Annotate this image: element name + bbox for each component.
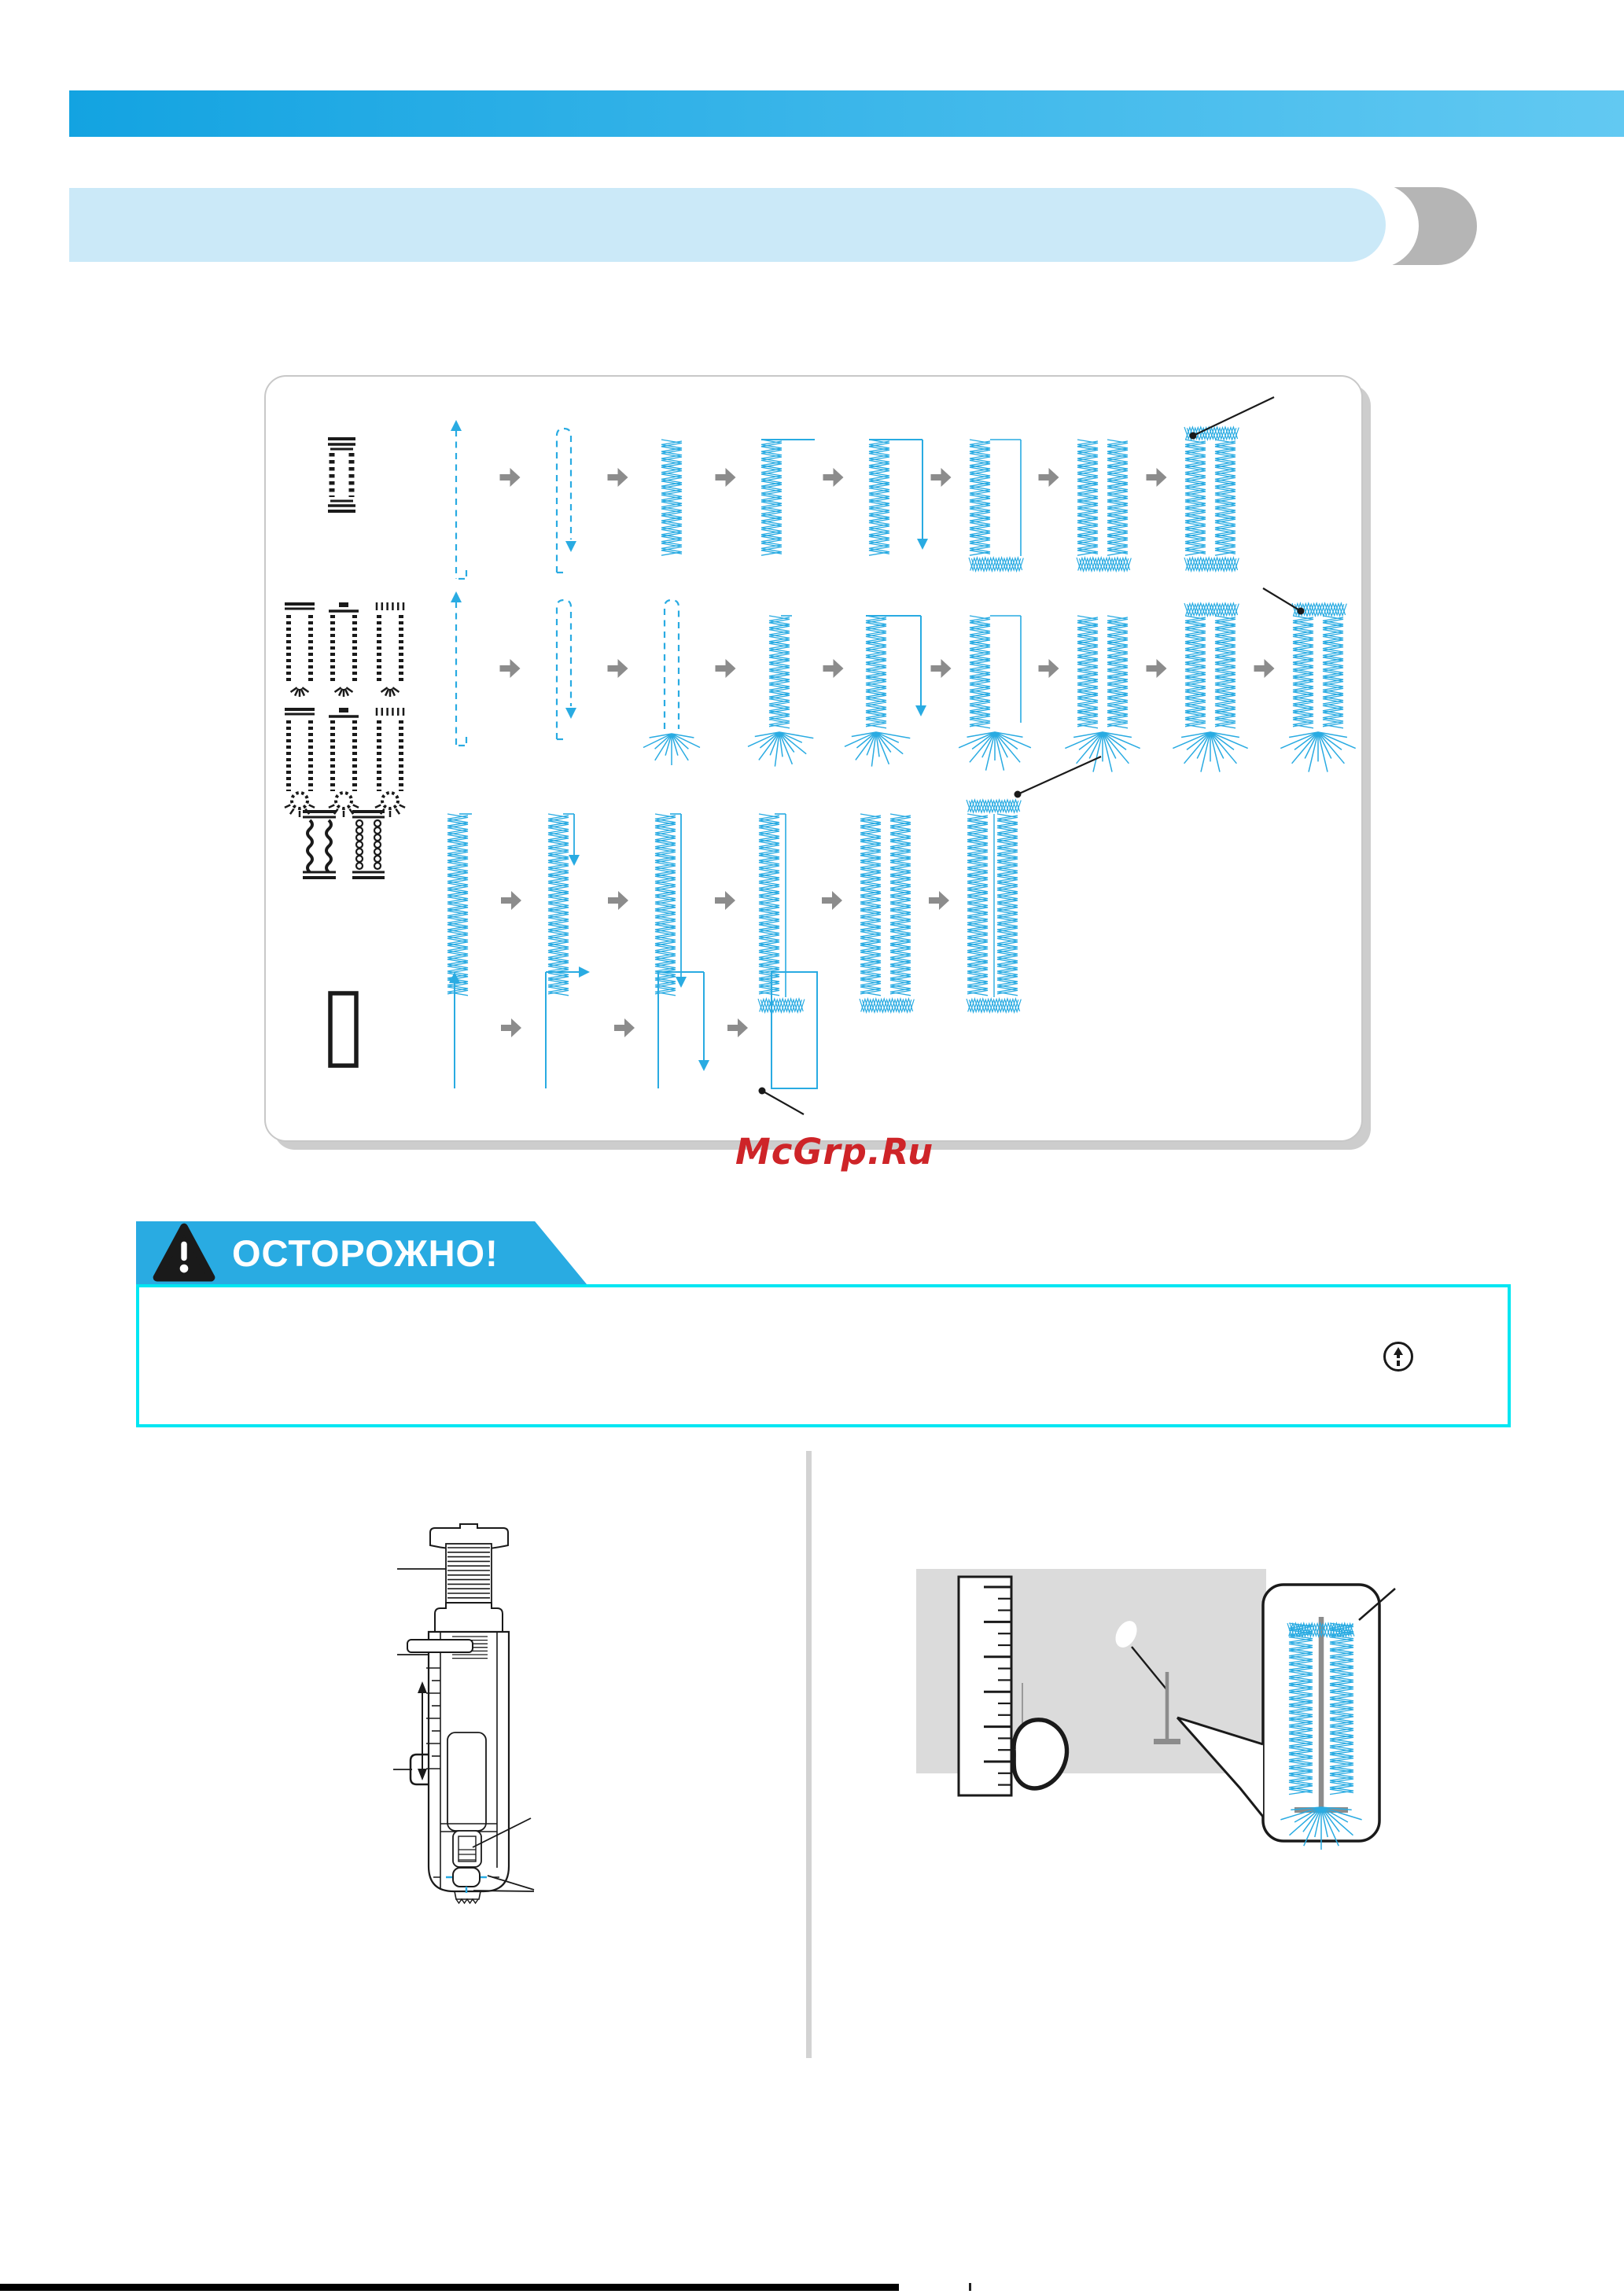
buttonhole-foot-diagram [385, 1522, 558, 1962]
manual-page: McGrp.Ru ОСТОРОЖНО! [0, 0, 1624, 2294]
stitch-step-baste-loop-eyelet [643, 600, 700, 765]
stitch-step-baste-loop [557, 429, 576, 573]
stitch-step-zigzag-two-columns-bartack [1077, 440, 1131, 571]
seam-ripper [1014, 1720, 1067, 1788]
stitch-step-keyhole-complete [1263, 588, 1356, 772]
opening-window [453, 1868, 480, 1887]
stitch-type-icons [330, 993, 356, 1066]
arrow-dash [1397, 1361, 1400, 1366]
step-arrow-icon [823, 468, 844, 487]
stitch-type-icons [328, 439, 355, 511]
step-arrow-icon [929, 891, 949, 910]
section-title-bar [69, 188, 1386, 262]
stop-pin-base [1154, 1739, 1180, 1744]
step-arrow-icon [823, 659, 844, 678]
column-divider [806, 1451, 812, 2058]
stitch-step-zigzag-bartack-corner [758, 814, 805, 1012]
stitch-step-zigzag-top-bar-arrow [869, 440, 928, 555]
step-arrow-icon [1039, 468, 1059, 487]
stitch-step-zigzag-eyelet [748, 616, 813, 767]
step-arrow-icon [1254, 659, 1275, 678]
step-arrow-icon [727, 1018, 748, 1037]
stitch-step-zigzag-arrow-long [655, 814, 687, 996]
stitch-step-zigzag-two-columns-eyelet-bartack [1173, 603, 1247, 772]
step-arrow-icon [500, 468, 521, 487]
stitch-step-outline-u [658, 972, 709, 1088]
page-footer-tick [969, 2283, 971, 2291]
square-buttonhole-sequence [328, 397, 1274, 579]
step-arrow-icon [715, 891, 735, 910]
step-arrow-icon [1147, 468, 1167, 487]
exclamation-bar [181, 1242, 186, 1261]
step-arrow-icon [501, 1018, 521, 1037]
stitch-step-zigzag-column [661, 440, 682, 555]
stitch-step-zigzag-top-bar-arrow-eyelet [845, 616, 926, 767]
button-guide-arm [407, 1640, 473, 1652]
stitch-step-zigzag-column-start [447, 814, 472, 996]
step-arrow-icon [608, 891, 628, 910]
step-arrow-icon [501, 891, 521, 910]
button-holder-slider [447, 1732, 486, 1831]
step-arrow-icon [822, 891, 842, 910]
stitch-step-zigzag-arrow-short [548, 814, 580, 996]
leader-marks-2 [473, 1891, 534, 1891]
stitch-step-buttonhole-complete [1184, 397, 1274, 571]
step-arrow-icon [716, 659, 736, 678]
watermark-text: McGrp.Ru [735, 1131, 934, 1173]
step-arrow-icon [716, 468, 736, 487]
slide-arrow-up [418, 1681, 427, 1693]
stitch-step-zigzag-top-bar [761, 440, 815, 555]
step-arrow-icon [1147, 659, 1167, 678]
stitch-step-zigzag-two-columns-eyelet [1065, 616, 1140, 772]
bound-buttonhole-outline-sequence [330, 967, 817, 1114]
stitch-step-zigzag-two-columns-bartack [860, 814, 914, 1012]
up-arrow [1394, 1347, 1403, 1358]
stitch-step-stretch-complete [967, 757, 1101, 1012]
stitch-step-baste-up [451, 420, 466, 579]
step-arrow-icon [1039, 659, 1059, 678]
stitch-step-zigzag-outline-eyelet [959, 616, 1031, 771]
stitch-step-baste-loop [557, 600, 576, 739]
step-arrow-icon [500, 659, 521, 678]
warning-label: ОСТОРОЖНО! [232, 1232, 499, 1275]
foot-collar [435, 1603, 503, 1632]
stitch-type-icons [303, 812, 385, 878]
warning-note-box [136, 1284, 1511, 1427]
exclamation-dot [180, 1265, 189, 1273]
stitch-step-zigzag-outline-bartack [969, 440, 1023, 571]
warning-triangle-icon [152, 1222, 216, 1287]
header-gradient-bar [69, 90, 1624, 137]
step-arrow-icon [931, 659, 952, 678]
buttonhole-cutting-diagram [897, 1541, 1431, 1911]
stretch-buttonhole-sequence [303, 757, 1101, 1012]
stitch-sequence-diagram [264, 375, 1360, 1139]
stitch-type-icons [285, 602, 405, 817]
slide-arrow-down [418, 1769, 427, 1780]
step-arrow-icon [614, 1018, 635, 1037]
stitch-step-baste-up [451, 591, 466, 746]
step-arrow-icon [608, 468, 628, 487]
needle-up-icon [1382, 1340, 1415, 1373]
foot-toe [455, 1891, 481, 1899]
keyhole-buttonhole-sequence [285, 588, 1356, 817]
step-arrow-icon [608, 659, 628, 678]
page-footer-bar [0, 2284, 899, 2291]
step-arrow-icon [931, 468, 952, 487]
stitch-step-outline-up [449, 972, 460, 1088]
